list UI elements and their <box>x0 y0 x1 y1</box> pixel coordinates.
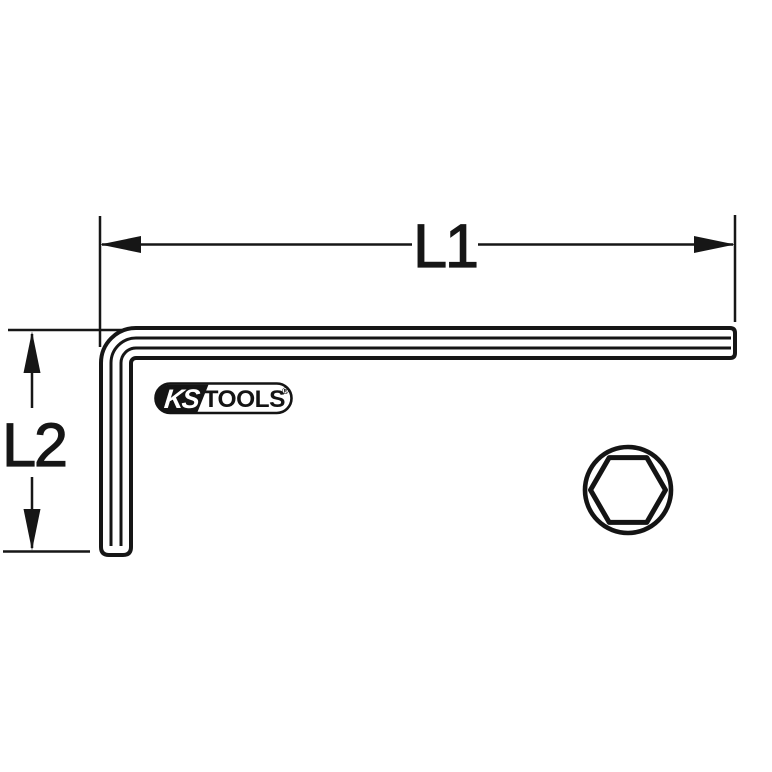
logo-tools-text: TOOLS <box>204 386 286 413</box>
arrow-left-icon <box>100 236 141 253</box>
arrow-up-icon <box>24 332 41 374</box>
logo-ks-text: KS <box>163 383 202 414</box>
ks-tools-logo: KS TOOLS ® <box>156 383 292 414</box>
dimension-l1-label: L1 <box>413 212 477 280</box>
arrow-down-icon <box>24 509 41 551</box>
hex-cross-section-icon <box>585 447 671 533</box>
cross-section-hexagon <box>591 458 666 523</box>
arrow-right-icon <box>694 236 735 253</box>
logo-registered-mark: ® <box>282 386 289 396</box>
dimension-l2-label: L2 <box>2 411 66 479</box>
product-drawing-canvas: L1 L2 KS TOOLS ® <box>0 0 772 772</box>
hex-key-technical-drawing: L1 L2 KS TOOLS ® <box>0 0 772 772</box>
